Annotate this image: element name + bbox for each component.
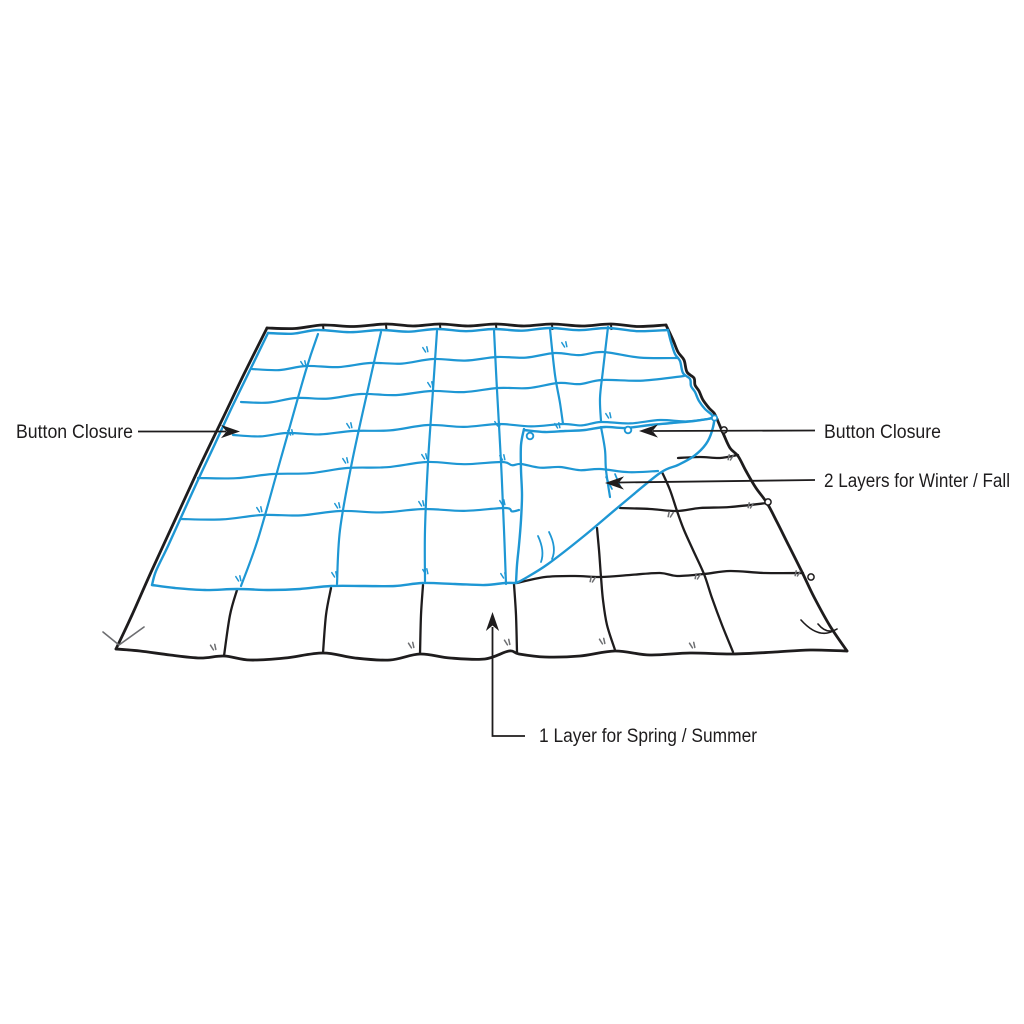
svg-text:Button Closure: Button Closure	[16, 422, 133, 443]
svg-text:Button Closure: Button Closure	[824, 422, 941, 443]
svg-text:2 Layers for Winter / Fall: 2 Layers for Winter / Fall	[824, 471, 1010, 492]
svg-text:1 Layer for Spring / Summer: 1 Layer for Spring / Summer	[539, 726, 758, 747]
